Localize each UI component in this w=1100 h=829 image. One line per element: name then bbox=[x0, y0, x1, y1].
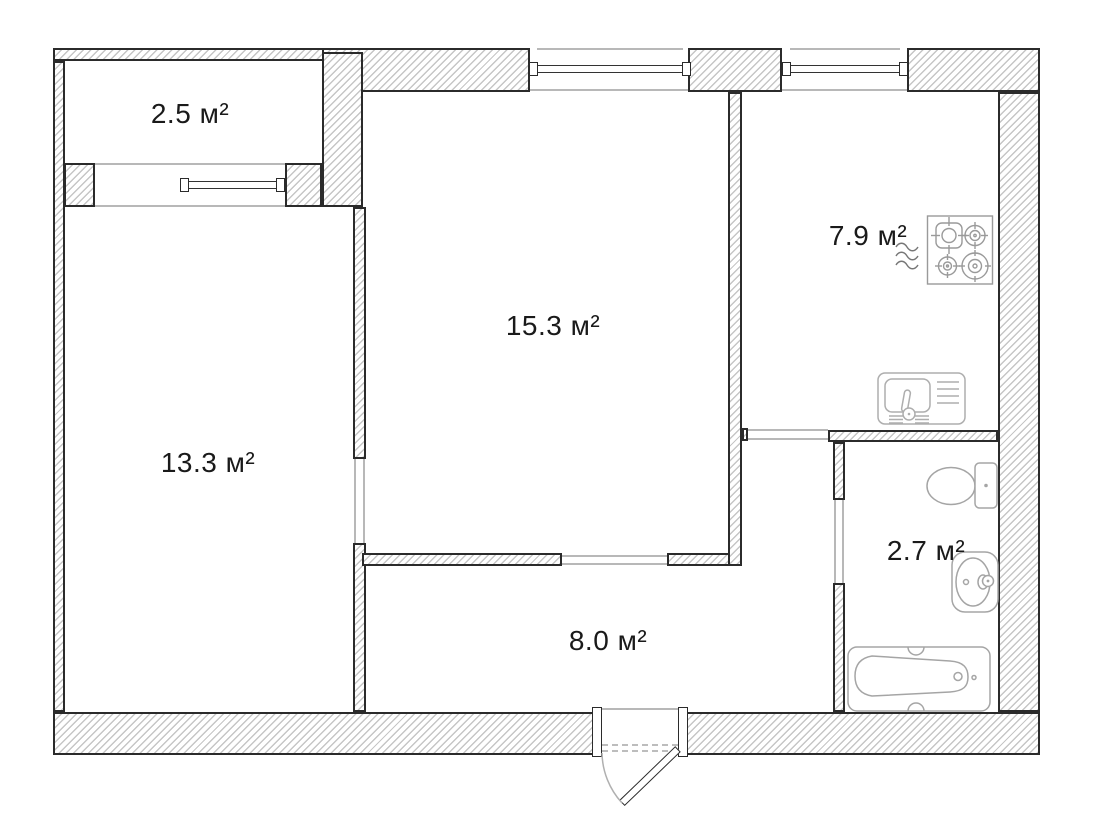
kitchen-doorway-face bbox=[748, 438, 828, 440]
window-inner-face bbox=[782, 89, 908, 91]
window-icon bbox=[537, 65, 683, 73]
wall-room13-room15-upper bbox=[353, 207, 366, 459]
bathroom-doorway-face bbox=[834, 500, 836, 583]
doorway-face bbox=[562, 555, 667, 557]
wall-bathroom-left-lower bbox=[833, 583, 845, 712]
window-end-cap bbox=[782, 62, 791, 76]
window-end-cap bbox=[529, 62, 538, 76]
wall-outer-bottom-right bbox=[678, 712, 1040, 755]
room-label-kitchen: 7.9 м² bbox=[829, 220, 907, 252]
wall-bathroom-left-upper bbox=[833, 442, 845, 500]
bathroom-doorway-face bbox=[842, 500, 844, 583]
room-label-hallway: 8.0 м² bbox=[569, 625, 647, 657]
gas-stove-icon bbox=[926, 214, 996, 286]
wall-outer-right bbox=[998, 92, 1040, 712]
kitchen-doorway-face bbox=[748, 429, 828, 431]
doorway-face bbox=[354, 459, 356, 543]
toilet-icon bbox=[923, 459, 1001, 511]
window-outer-face bbox=[537, 48, 683, 50]
wall-balcony-pier-right bbox=[285, 163, 322, 207]
wall-room15-kitchen bbox=[728, 92, 742, 566]
wall-balcony-top bbox=[53, 48, 330, 61]
window-icon bbox=[188, 181, 277, 189]
wall-outer-bottom-left bbox=[53, 712, 602, 755]
bathtub-icon bbox=[846, 644, 994, 714]
balcony-wall-inner-face bbox=[95, 205, 285, 207]
floor-plan: 2.5 м² 13.3 м² 15.3 м² 7.9 м² 2.7 м² 8.0… bbox=[0, 0, 1100, 829]
kitchen-sink-icon bbox=[876, 370, 968, 428]
doorway-face bbox=[562, 563, 667, 565]
wall-balcony-right bbox=[322, 52, 363, 207]
doorway-face bbox=[363, 459, 365, 543]
window-outer-face bbox=[790, 48, 900, 50]
room-label-balcony: 2.5 м² bbox=[151, 98, 229, 130]
window-icon bbox=[790, 65, 900, 73]
wall-top-pier bbox=[688, 48, 782, 92]
window-end-cap bbox=[682, 62, 691, 76]
wall-top-right-corner bbox=[907, 48, 1040, 92]
balcony-wall-outer-face bbox=[95, 163, 285, 165]
wall-bathroom-top bbox=[828, 430, 998, 442]
room-label-bathroom: 2.7 м² bbox=[887, 535, 965, 567]
window-end-cap bbox=[180, 178, 189, 192]
wall-balcony-pier-left bbox=[64, 163, 95, 207]
wall-room13-hall-lower bbox=[353, 543, 366, 712]
room-label-bedroom: 15.3 м² bbox=[506, 310, 600, 342]
wall-kitchen-door-jamb bbox=[742, 428, 748, 441]
window-inner-face bbox=[529, 89, 692, 91]
room-label-living-room: 13.3 м² bbox=[161, 447, 255, 479]
wall-outer-left bbox=[53, 61, 65, 712]
window-end-cap bbox=[899, 62, 908, 76]
window-end-cap bbox=[276, 178, 285, 192]
wall-room15-bottom-left bbox=[362, 553, 562, 566]
door-swing-arc bbox=[540, 695, 700, 825]
